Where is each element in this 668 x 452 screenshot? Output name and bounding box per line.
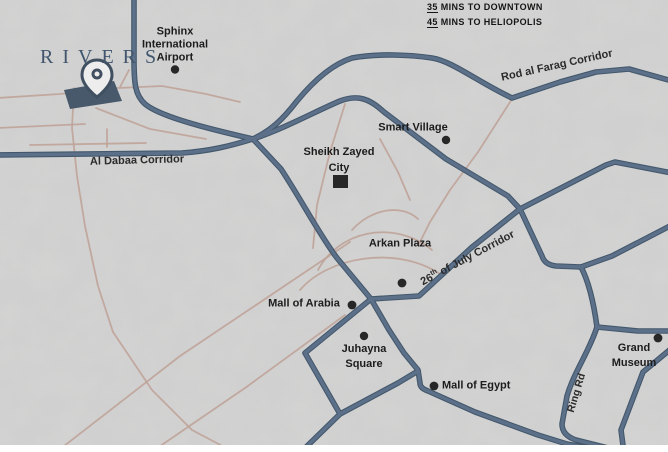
label-sheikh-zayed-city: Sheikh Zayed City [304, 144, 375, 176]
bottom-white-strip [0, 445, 668, 452]
minutes-downtown: 35 [427, 2, 438, 13]
label-sphinx-airport: Sphinx International Airport [142, 26, 208, 65]
map-canvas: 35 MINS TO DOWNTOWN 45 MINS TO HELIOPOLI… [0, 0, 668, 452]
label-mall-of-arabia: Mall of Arabia [268, 298, 340, 311]
minutes-heliopolis: 45 [427, 17, 438, 28]
label-al-dabaa-corridor: Al Dabaa Corridor [90, 153, 184, 168]
label-mall-of-egypt: Mall of Egypt [442, 380, 510, 393]
travel-time-heliopolis: 45 MINS TO HELIOPOLIS [427, 15, 543, 30]
label-juhayna-square: Juhayna Square [342, 342, 387, 372]
travel-times: 35 MINS TO DOWNTOWN 45 MINS TO HELIOPOLI… [427, 0, 543, 30]
label-grand-museum: Grand Museum [612, 341, 657, 371]
label-smart-village: Smart Village [378, 122, 448, 135]
travel-time-downtown: 35 MINS TO DOWNTOWN [427, 0, 543, 15]
label-arkan-plaza: Arkan Plaza [369, 238, 431, 251]
